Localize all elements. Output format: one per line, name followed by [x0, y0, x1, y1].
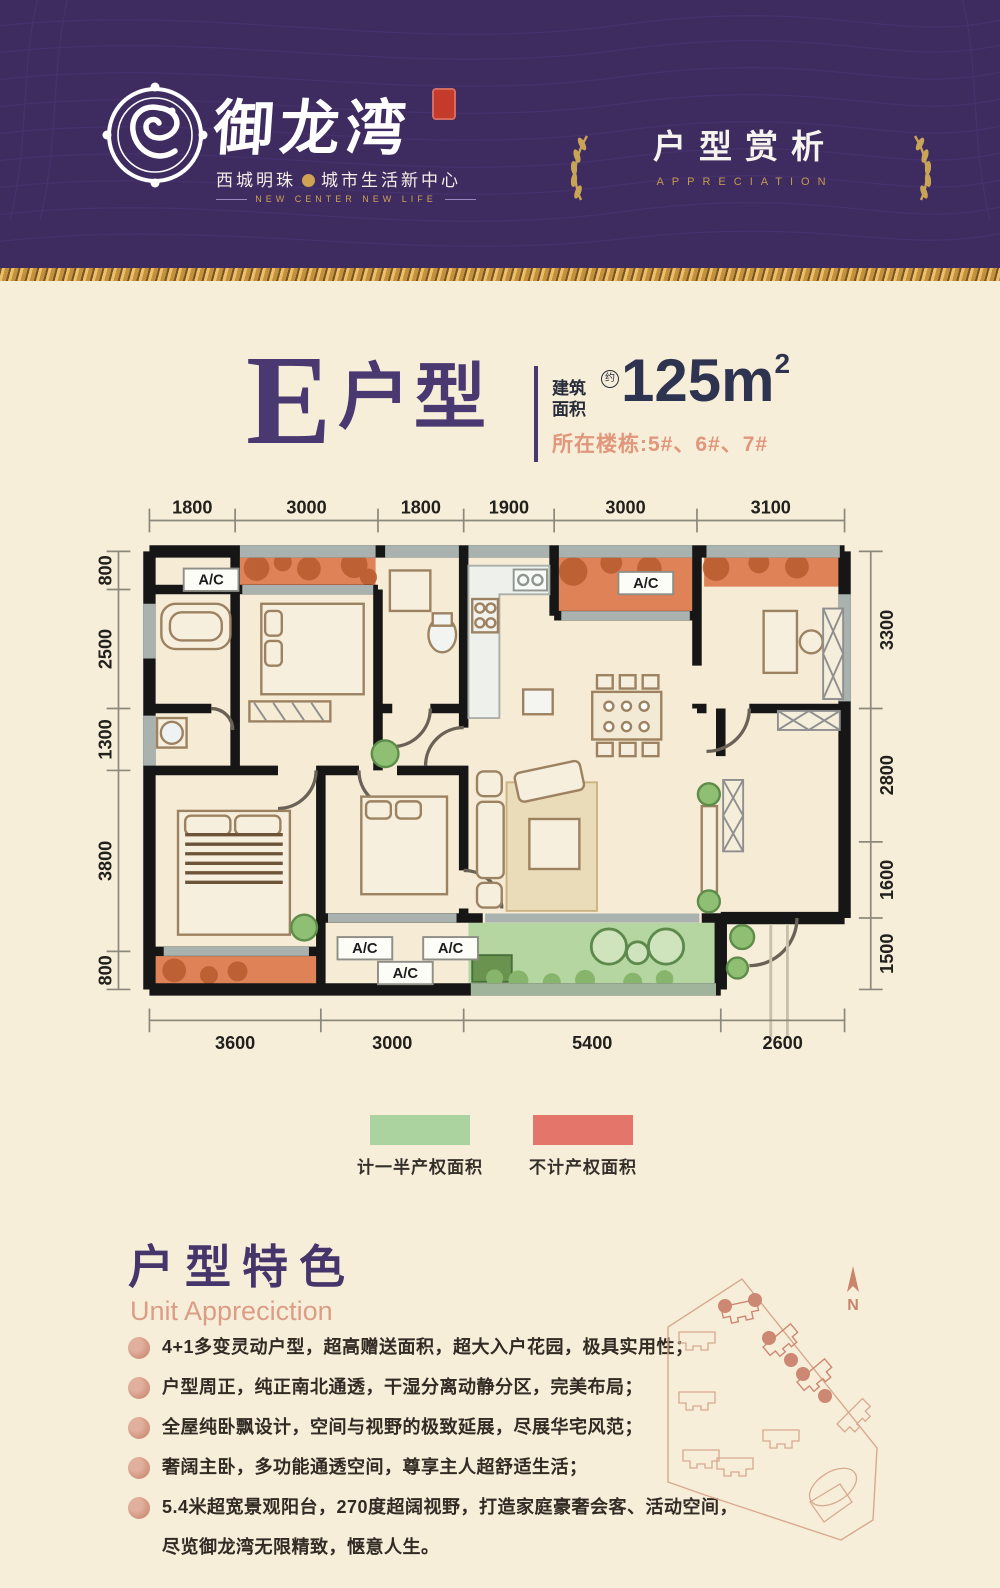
svg-text:1900: 1900: [489, 497, 529, 517]
laurel-left-icon: [557, 128, 597, 208]
seal-bullet-icon: [128, 1417, 150, 1439]
site-plan: N: [645, 1252, 965, 1572]
site-highlighted-buildings: [718, 1293, 836, 1403]
brand-name: 御龙湾: [211, 80, 415, 167]
svg-text:1600: 1600: [877, 860, 897, 900]
legend-green-swatch: [370, 1115, 470, 1145]
ac-label: A/C: [393, 966, 419, 982]
svg-text:1300: 1300: [95, 719, 115, 759]
banner-block: 户型赏析 APPRECIATION: [595, 120, 895, 188]
dragon-emblem-icon: [98, 78, 212, 192]
brand-tagline: 西城明珠城市生活新中心: [216, 166, 461, 191]
area-value: 125m2: [621, 350, 790, 411]
feature-text: 尽览御龙湾无限精致，惬意人生。: [162, 1536, 440, 1559]
brand-subtitle-row: NEW CENTER NEW LIFE: [216, 194, 476, 204]
gold-dot-icon: [302, 174, 315, 187]
tagline-right: 城市生活新中心: [321, 171, 461, 190]
svg-text:5400: 5400: [572, 1033, 612, 1053]
ac-label: A/C: [633, 576, 659, 592]
svg-text:3000: 3000: [372, 1033, 412, 1053]
tagline-left: 西城明珠: [216, 171, 296, 190]
svg-text:1800: 1800: [401, 497, 441, 517]
feature-text: 户型周正，纯正南北通透，干湿分离动静分区，完美布局；: [162, 1376, 643, 1399]
features-subtitle: Unit Appreciction: [130, 1296, 333, 1327]
ac-label: A/C: [352, 941, 378, 957]
svg-text:3800: 3800: [95, 841, 115, 881]
gold-rope-divider: [0, 268, 1000, 281]
area-label: 建筑 面积: [552, 378, 586, 420]
logo-block: 御龙湾 西城明珠城市生活新中心 NEW CENTER NEW LIFE: [98, 76, 478, 216]
seal-bullet-icon: [128, 1337, 150, 1359]
svg-text:1800: 1800: [172, 497, 212, 517]
site-boundary: [668, 1279, 877, 1540]
area-number: 125m: [621, 347, 774, 414]
svg-text:1500: 1500: [877, 934, 897, 974]
legend-red-swatch: [533, 1115, 633, 1145]
brochure-page: 御龙湾 西城明珠城市生活新中心 NEW CENTER NEW LIFE: [0, 0, 1000, 1588]
ac-label: A/C: [438, 941, 464, 957]
approx-circle-badge: 约: [601, 370, 619, 388]
svg-text:2500: 2500: [95, 629, 115, 669]
dims-top: 1800 3000 1800 1900 3000 3100: [172, 497, 791, 517]
ac-label: A/C: [198, 573, 224, 589]
legend-none-label: 不计产权面积: [498, 1153, 668, 1178]
legend-half-label: 计一半产权面积: [335, 1153, 505, 1178]
legend-half-rights: 计一半产权面积: [335, 1115, 505, 1178]
north-arrow-icon: N: [847, 1266, 859, 1314]
buildings-line: 所在楼栋:5#、6#、7#: [552, 428, 768, 458]
feature-text: 全屋纯卧飘设计，空间与视野的极致延展，尽展华宅风范；: [162, 1416, 643, 1439]
area-superscript: 2: [774, 348, 790, 379]
svg-text:3000: 3000: [605, 497, 645, 517]
svg-text:800: 800: [95, 955, 115, 985]
banner-title: 户型赏析: [595, 120, 895, 168]
brand-subtitle: NEW CENTER NEW LIFE: [255, 194, 437, 204]
header: 御龙湾 西城明珠城市生活新中心 NEW CENTER NEW LIFE: [0, 0, 1000, 268]
seal-bullet-icon: [128, 1377, 150, 1399]
feature-text: 奢阔主卧，多功能通透空间，尊享主人超舒适生活；: [162, 1456, 588, 1479]
area-label-line1: 建筑: [552, 378, 586, 399]
brand-seal-icon: [432, 88, 456, 120]
laurel-right-icon: [905, 128, 945, 208]
legend-no-rights: 不计产权面积: [498, 1115, 668, 1178]
dims-right: 3300 2800 1600 1500: [877, 610, 897, 974]
svg-text:3000: 3000: [286, 497, 326, 517]
dims-bottom: 3600 3000 5400 2600: [215, 1033, 803, 1053]
north-label: N: [847, 1297, 859, 1314]
svg-text:2800: 2800: [877, 755, 897, 795]
banner-subtitle: APPRECIATION: [595, 176, 895, 188]
unit-letter: E: [246, 336, 331, 464]
floor-plan: A/C A/C A/C A/C A/C 1800 3000 1800: [68, 480, 926, 1068]
feature-text: 4+1多变灵动户型，超高赠送面积，超大入户花园，极具实用性；: [162, 1336, 694, 1359]
seal-bullet-icon: [128, 1457, 150, 1479]
left-rule: [216, 199, 247, 200]
svg-text:3600: 3600: [215, 1033, 255, 1053]
svg-text:2600: 2600: [763, 1033, 803, 1053]
svg-text:800: 800: [95, 555, 115, 585]
title-divider: [534, 366, 538, 462]
svg-text:3300: 3300: [877, 610, 897, 650]
site-buildings: [679, 1332, 875, 1522]
right-rule: [445, 199, 476, 200]
unit-name: 户型: [338, 362, 490, 434]
seal-bullet-icon: [128, 1497, 150, 1519]
features-title: 户型特色: [128, 1244, 356, 1290]
area-label-line2: 面积: [552, 399, 586, 420]
half-rights-balcony: [468, 923, 718, 992]
svg-text:3100: 3100: [751, 497, 791, 517]
